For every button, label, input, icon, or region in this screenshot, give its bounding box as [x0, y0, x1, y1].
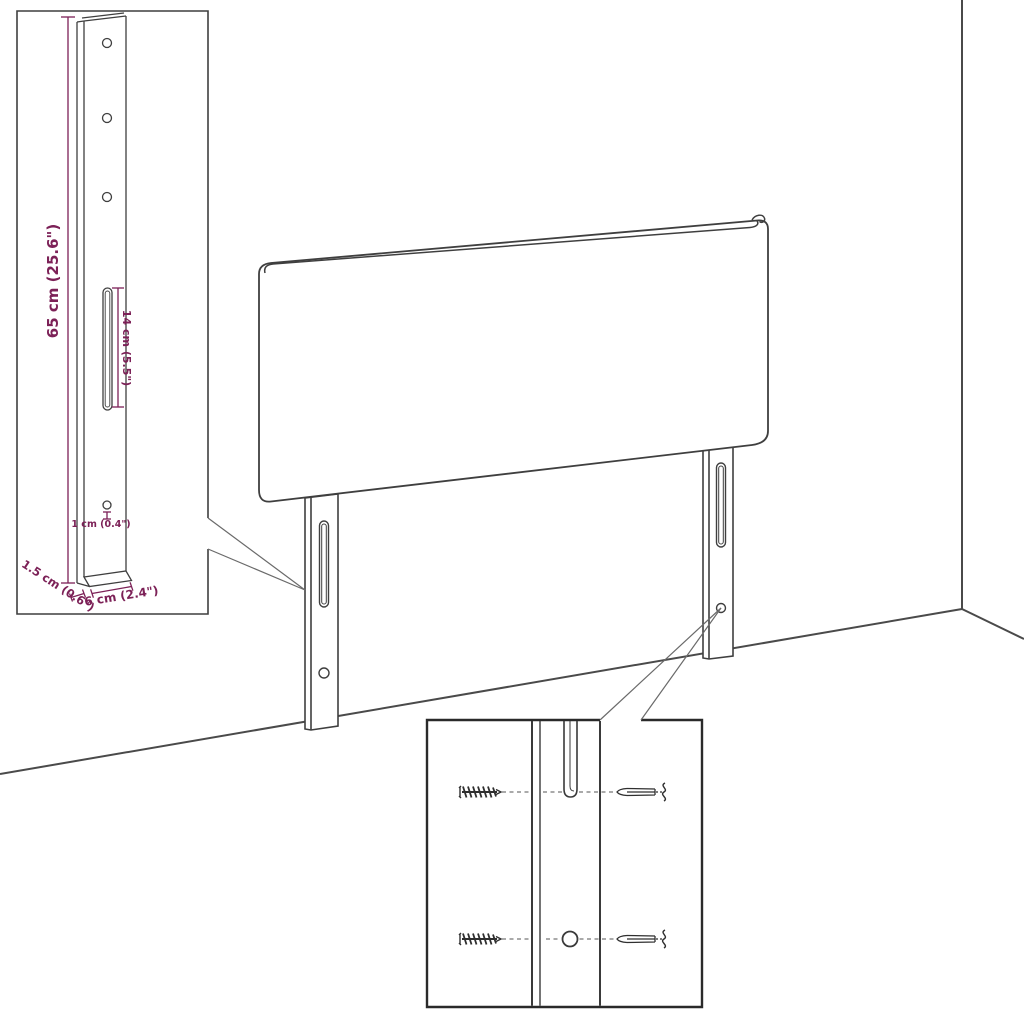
strip-hole [563, 932, 578, 947]
inset-slot [103, 288, 112, 410]
plug-head [459, 786, 461, 798]
mounting-hardware-detail-box [427, 720, 702, 1007]
label-bracket-height: 65 cm (25.6") [44, 224, 62, 338]
inset-wedge-lower-line [208, 549, 305, 590]
left-bracket-slot [320, 521, 329, 607]
label-hole-diameter: 1 cm (0.4") [71, 519, 130, 530]
inset-small-hole [103, 501, 111, 509]
left-mounting-bracket [305, 494, 338, 730]
diagram-canvas: 65 cm (25.6") 14 cm (5.5") 1 cm (0.4") 1… [0, 0, 1024, 1024]
inset-wedge-upper-line [208, 518, 305, 590]
right-bracket-slot [717, 463, 726, 547]
plug-head [459, 933, 461, 945]
floor-edge-right-line [962, 609, 1024, 639]
bracket-dimension-inset: 65 cm (25.6") 14 cm (5.5") 1 cm (0.4") 1… [17, 11, 208, 614]
inset-callout-wedge [208, 518, 305, 590]
hardware-wedge-left-line [600, 608, 721, 720]
left-bracket-hole [319, 668, 329, 678]
headboard-outline [259, 220, 768, 501]
headboard-panel [259, 215, 768, 501]
hardware-callout-wedge [600, 608, 721, 720]
label-slot-length: 14 cm (5.5") [120, 310, 133, 386]
hardware-wedge-right-line [641, 608, 721, 720]
inset-hole-top [103, 39, 112, 48]
inset-hole-lower [103, 193, 112, 202]
inset-hole-middle [103, 114, 112, 123]
headboard-dimension-diagram: 65 cm (25.6") 14 cm (5.5") 1 cm (0.4") 1… [0, 0, 1024, 1024]
